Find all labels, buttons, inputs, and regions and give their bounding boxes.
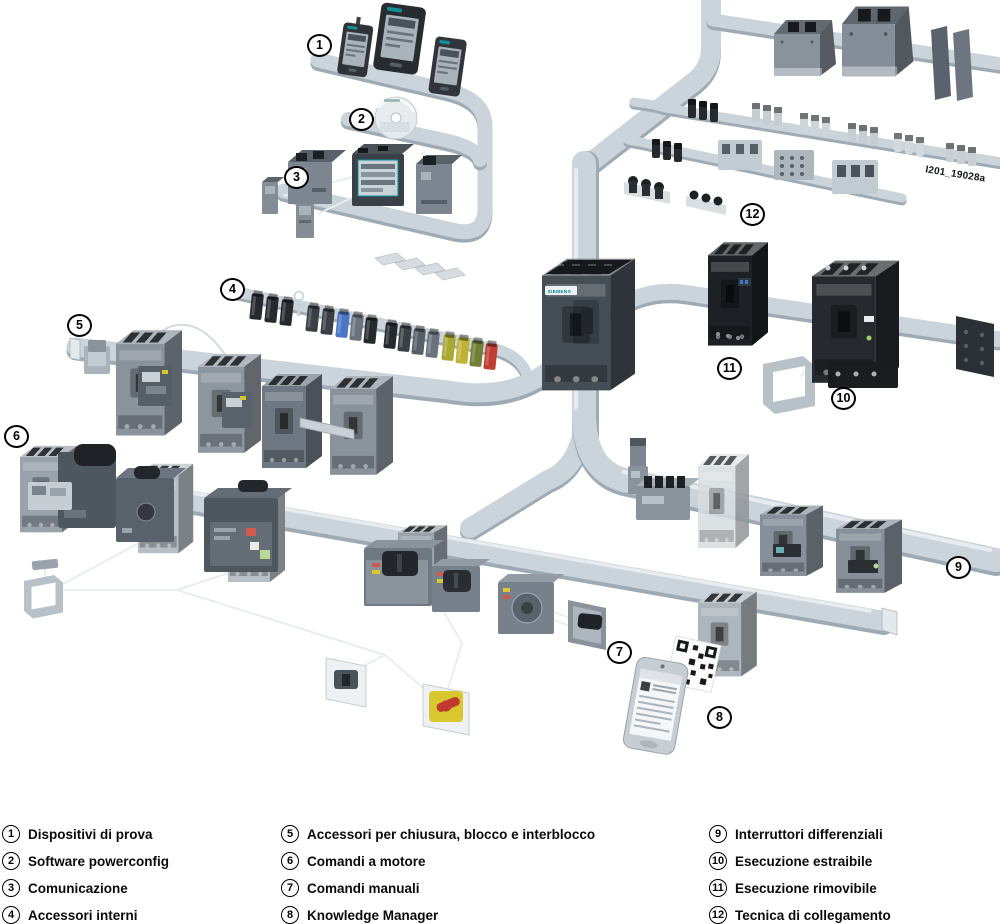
legend-num-12: 12 [709, 906, 727, 924]
smartphone [622, 656, 689, 756]
legend: 1Dispositivi di prova 2Software powercon… [0, 820, 1000, 924]
legend-label-11: Esecuzione rimovibile [735, 881, 877, 896]
legend-item-1: 1Dispositivi di prova [2, 824, 153, 844]
legend-num-2: 2 [2, 852, 20, 870]
legend-label-8: Knowledge Manager [307, 908, 438, 923]
callout-10: 10 [831, 387, 856, 410]
legend-label-4: Accessori interni [28, 908, 138, 923]
legend-num-6: 6 [281, 852, 299, 870]
legend-num-10: 10 [709, 852, 727, 870]
group-8-knowledge-manager [622, 592, 757, 756]
legend-num-8: 8 [281, 906, 299, 924]
siemens-brand-label: SIEMENS [548, 289, 572, 295]
legend-item-5: 5Accessori per chiusura, blocco e interb… [281, 824, 595, 844]
group-11-plug-in [708, 242, 768, 345]
diagram-canvas: SIEMENS [0, 0, 1000, 820]
legend-num-7: 7 [281, 879, 299, 897]
callout-5: 5 [67, 314, 92, 337]
legend-num-1: 1 [2, 825, 20, 843]
group-10-withdrawable [763, 261, 994, 414]
callout-12: 12 [740, 203, 765, 226]
callout-6: 6 [4, 425, 29, 448]
callout-1: 1 [307, 34, 332, 57]
legend-item-6: 6Comandi a motore [281, 851, 426, 871]
callout-8: 8 [707, 706, 732, 729]
legend-label-10: Esecuzione estraibile [735, 854, 872, 869]
legend-item-2: 2Software powerconfig [2, 851, 169, 871]
legend-item-7: 7Comandi manuali [281, 878, 420, 898]
legend-label-12: Tecnica di collegamento [735, 908, 891, 923]
legend-item-10: 10Esecuzione estraibile [709, 851, 872, 871]
group-9-rcd-row [628, 438, 902, 593]
legend-num-11: 11 [709, 879, 727, 897]
legend-num-5: 5 [281, 825, 299, 843]
mounting-plates [375, 253, 465, 280]
group-2-software-cd [375, 97, 417, 139]
legend-item-4: 4Accessori interni [2, 905, 138, 924]
callout-9: 9 [946, 556, 971, 579]
legend-item-3: 3Comunicazione [2, 878, 128, 898]
callout-4: 4 [220, 278, 245, 301]
legend-item-11: 11Esecuzione rimovibile [709, 878, 877, 898]
legend-label-7: Comandi manuali [307, 881, 420, 896]
legend-num-9: 9 [709, 825, 727, 843]
center-main-breaker: SIEMENS [542, 259, 635, 391]
legend-label-2: Software powerconfig [28, 854, 169, 869]
callout-3: 3 [284, 166, 309, 189]
group-4-internal-accessories [249, 290, 498, 370]
legend-label-1: Dispositivi di prova [28, 827, 153, 842]
legend-item-12: 12Tecnica di collegamento [709, 905, 891, 924]
legend-label-9: Interruttori differenziali [735, 827, 883, 842]
legend-num-3: 3 [2, 879, 20, 897]
callout-2: 2 [349, 108, 374, 131]
legend-num-4: 4 [2, 906, 20, 924]
legend-label-3: Comunicazione [28, 881, 128, 896]
legend-label-6: Comandi a motore [307, 854, 426, 869]
legend-label-5: Accessori per chiusura, blocco e interbl… [307, 827, 595, 842]
callout-7: 7 [607, 641, 632, 664]
product-overview-page: SIEMENS 1 2 3 4 5 6 7 8 9 10 11 12 I201_… [0, 0, 1000, 924]
group-5-locking-accessories [84, 325, 393, 475]
callout-11: 11 [717, 357, 742, 380]
legend-item-8: 8Knowledge Manager [281, 905, 438, 924]
legend-item-9: 9Interruttori differenziali [709, 824, 883, 844]
